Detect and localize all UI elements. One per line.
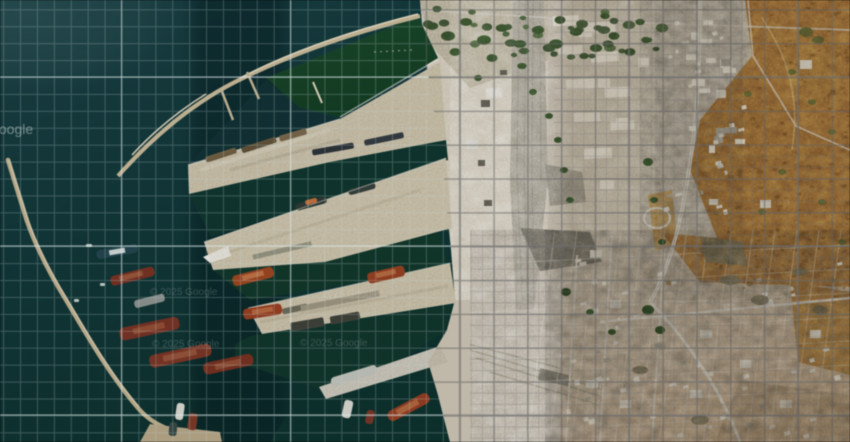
svg-text:© 2025 Google: © 2025 Google [150, 287, 218, 298]
svg-text:© 2025 Google: © 2025 Google [152, 339, 220, 350]
svg-text:2025 Google: 2025 Google [322, 289, 380, 300]
svg-text:Google: Google [0, 121, 33, 137]
svg-text:© 2025 Google: © 2025 Google [300, 338, 368, 349]
